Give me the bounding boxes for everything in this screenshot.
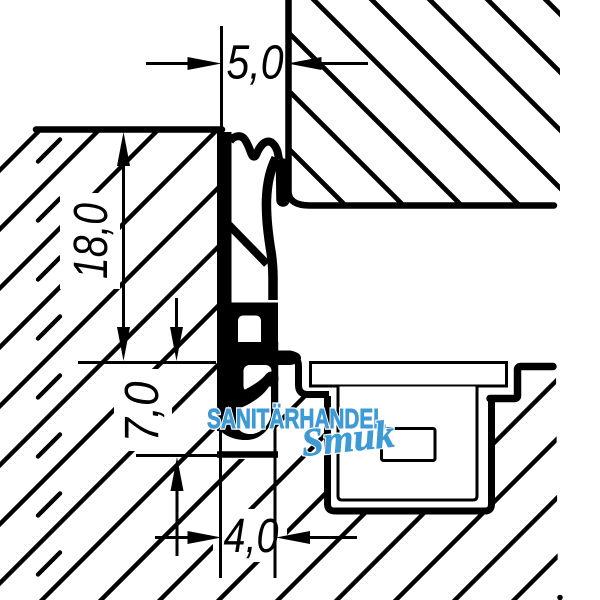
svg-text:5,0: 5,0: [227, 37, 284, 90]
svg-text:4,0: 4,0: [224, 510, 279, 563]
svg-text:18,0: 18,0: [65, 203, 118, 279]
svg-text:7,0: 7,0: [116, 381, 169, 442]
